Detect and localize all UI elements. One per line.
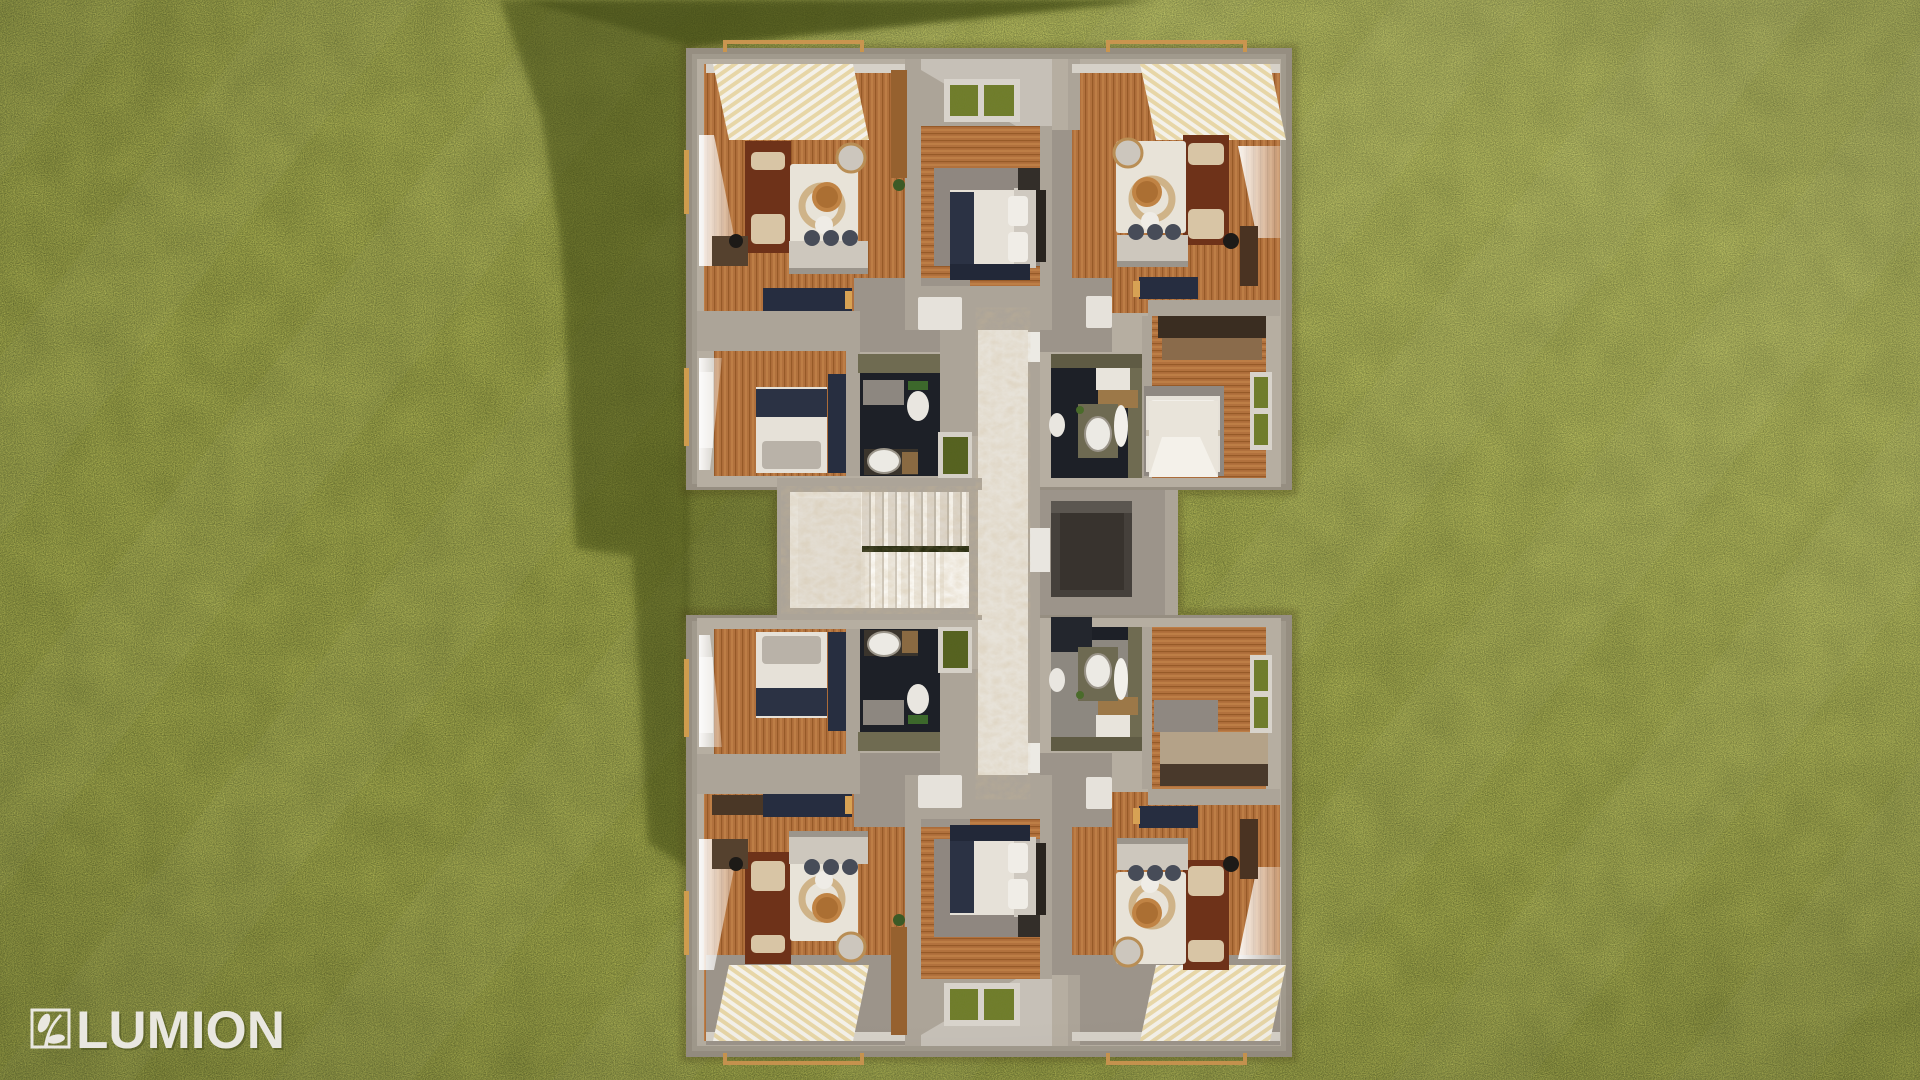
svg-text:LUMION: LUMION (76, 1001, 285, 1060)
